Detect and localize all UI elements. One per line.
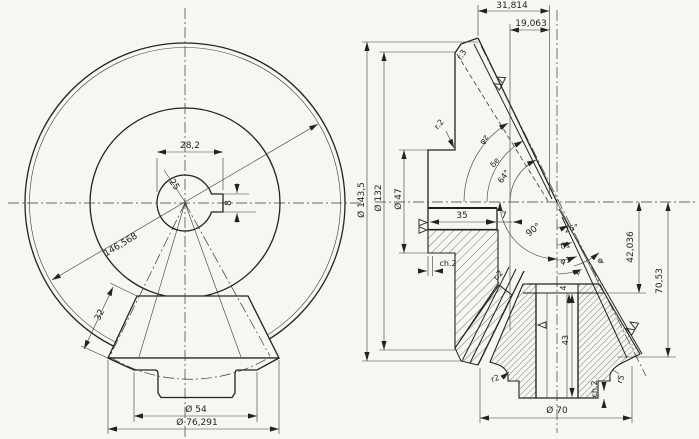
pinion-silhouette-hub — [108, 358, 279, 398]
section-view-gear-pair: Ø 143,5 Ø 132 Ø 47 31,814 19,063 35 7 ch… — [356, 1, 697, 433]
angle-psi: ψ — [574, 267, 581, 277]
radius-r2-top: r.2 — [432, 118, 445, 132]
dim-70: Ø 70 — [546, 405, 568, 416]
angle-delta-e: δe — [488, 156, 501, 169]
gear-rim-outline — [428, 38, 478, 230]
chamfer-pinion-bore: ch.2 — [590, 380, 599, 397]
dim-19-063: 19,063 — [515, 19, 547, 29]
radius-r5-leader — [613, 370, 619, 374]
angle-phi: φ — [595, 256, 605, 265]
angle-delta-1: δ1 — [560, 240, 572, 251]
radius-r2-bottom: r2 — [490, 373, 501, 384]
front-view-gear-wheel: 28,2 8 25 146,568 32 Ø 54 Ø 76,291 — [8, 8, 362, 437]
surface-finish-icon-left — [419, 219, 427, 233]
dim-7: 7 — [501, 211, 507, 221]
engineering-drawing-page: 28,2 8 25 146,568 32 Ø 54 Ø 76,291 — [0, 0, 699, 439]
dim-4: 4 — [559, 285, 568, 290]
surface-finish-icon-bore — [538, 322, 546, 328]
dim-143-5: Ø 143,5 — [356, 182, 367, 218]
dim-43: 43 — [561, 335, 570, 345]
dim-32-ext-top — [110, 283, 137, 296]
chamfer-gear-hub: ch.2 — [439, 259, 456, 268]
dim-42-036: 42,036 — [626, 231, 636, 263]
dim-70-53: 70,53 — [655, 268, 665, 294]
dim-76-291: Ø 76,291 — [176, 417, 217, 428]
dim-8: 8 — [224, 200, 234, 206]
radius-r2-top-leader — [446, 131, 454, 148]
angle-90: 90° — [524, 222, 543, 240]
bevel-gear-drawing: 28,2 8 25 146,568 32 Ø 54 Ø 76,291 — [0, 0, 699, 439]
angle-64: 64° — [496, 168, 512, 185]
pinion-section-right-hatched — [578, 284, 640, 398]
dim-31-814: 31,814 — [496, 1, 528, 11]
dim-146-568: 146,568 — [102, 231, 139, 259]
angle-phi-z: φz — [478, 133, 491, 146]
tooth-face-line-top — [474, 44, 552, 199]
dim-28-2: 28,2 — [180, 141, 200, 151]
dim-132: Ø 132 — [373, 184, 384, 211]
dim-32-ext-bottom — [81, 346, 108, 358]
angle-26: 26° — [563, 222, 579, 234]
pinion-silhouette-trapezoid — [108, 296, 279, 358]
dim-25: 25 — [166, 177, 181, 192]
dim-54: Ø 54 — [185, 404, 207, 415]
dim-32: 32 — [93, 308, 107, 323]
dim-47: Ø 47 — [393, 188, 404, 209]
angle-arc-64 — [510, 160, 536, 202]
tooth-tip-line-top — [478, 38, 557, 202]
angle-arc-phi-z — [464, 123, 508, 202]
dim-35: 35 — [456, 211, 467, 221]
angle-phi-1: φ1 — [559, 255, 571, 266]
radius-r5: r5 — [615, 374, 626, 385]
